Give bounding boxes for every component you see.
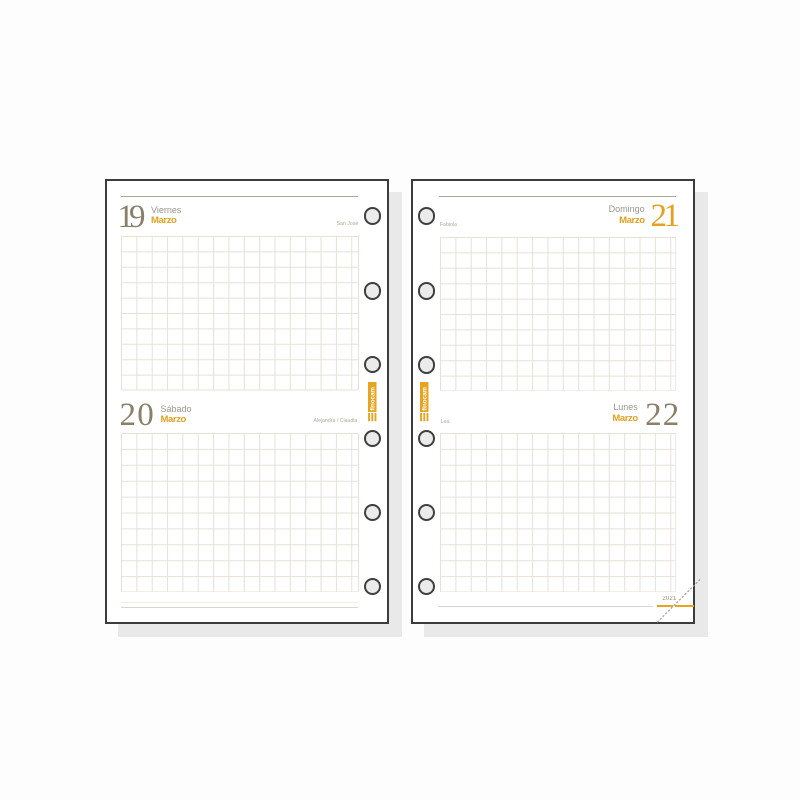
svg-text:finocam: finocam (370, 387, 377, 411)
svg-text:finocam: finocam (421, 386, 428, 410)
